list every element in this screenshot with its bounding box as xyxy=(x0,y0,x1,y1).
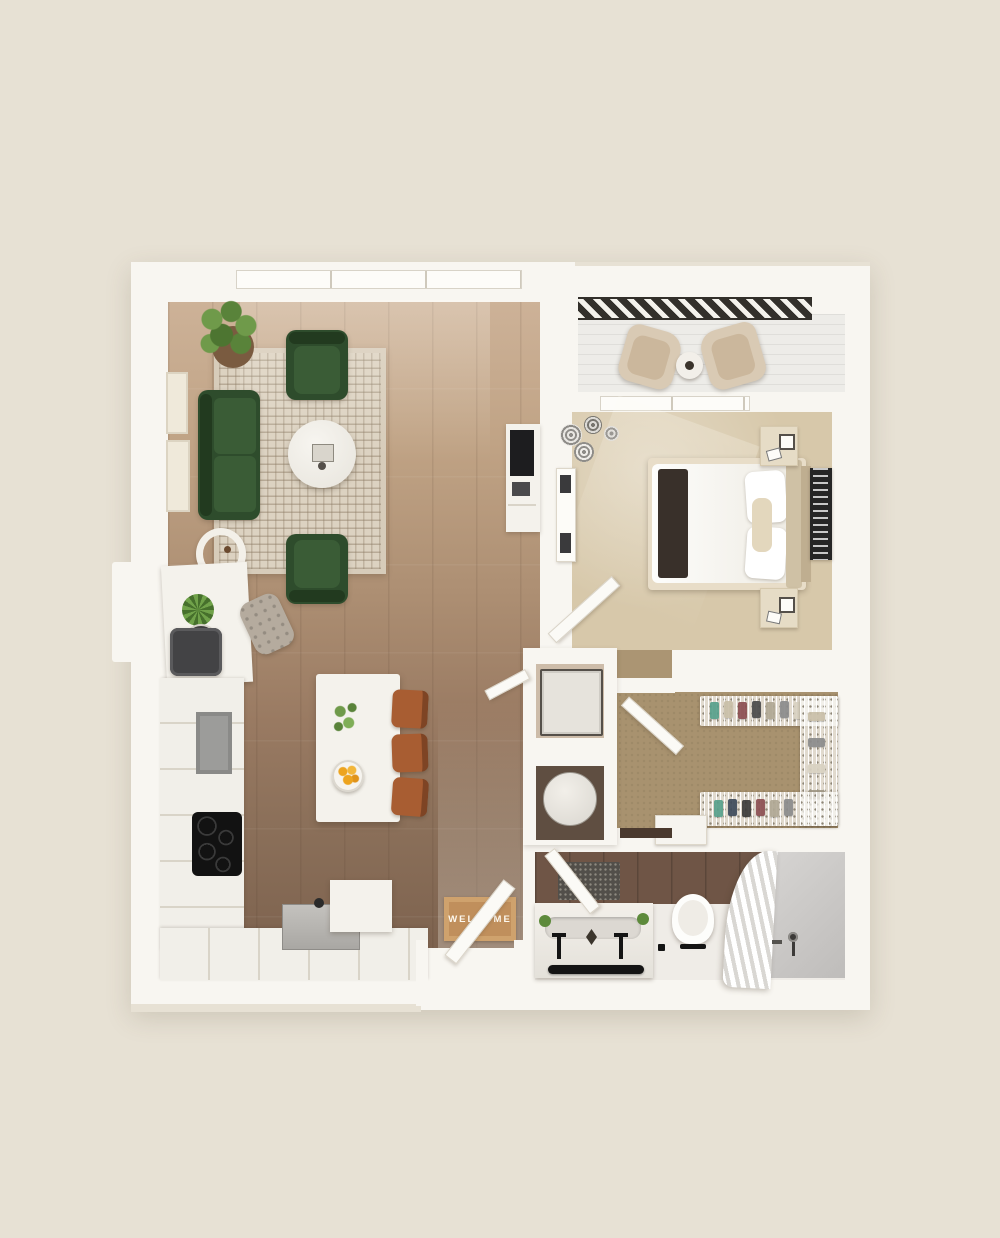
wall-hall-stub xyxy=(617,678,675,693)
side-table-decor xyxy=(224,546,231,553)
nightstand-lamp xyxy=(779,597,795,613)
refrigerator xyxy=(170,628,222,676)
sofa-back-cushion xyxy=(200,394,212,516)
armchair-bottom xyxy=(286,534,348,604)
toilet xyxy=(672,894,714,952)
decor-vase xyxy=(574,442,594,462)
hanging-clothes xyxy=(770,800,779,817)
headboard xyxy=(786,460,802,588)
wall-balcony-top xyxy=(560,266,870,297)
nightstand-book xyxy=(766,611,782,625)
armchair-cushion xyxy=(294,346,340,394)
coffee-table xyxy=(288,420,356,488)
living-windows xyxy=(236,270,522,289)
bar-stool xyxy=(391,689,429,729)
balcony-side-table xyxy=(676,352,703,379)
vanity-plant-left xyxy=(539,915,551,927)
armchair-top xyxy=(286,330,348,400)
wall-oven xyxy=(196,712,232,774)
lounge-cushion xyxy=(709,332,757,383)
shower-fixture-bar xyxy=(792,942,795,956)
accent-pillow xyxy=(752,498,772,552)
nightstand-book xyxy=(766,447,782,461)
kitchen-island xyxy=(316,674,400,822)
hanging-clothes xyxy=(756,799,765,816)
hanging-clothes xyxy=(710,702,719,719)
wall-closet-top xyxy=(672,650,845,692)
shower-fixture xyxy=(788,932,798,942)
shower-valve xyxy=(772,940,782,944)
kitchen-sink-faucet xyxy=(314,898,324,908)
armchair-cushion xyxy=(294,540,340,588)
water-heater xyxy=(543,772,597,826)
bedroom-dresser xyxy=(556,468,576,562)
toilet-hinge xyxy=(680,944,706,949)
dresser-drawer xyxy=(560,475,571,493)
hanging-clothes xyxy=(766,702,775,719)
closet-doorway-shadow xyxy=(620,828,672,838)
hanging-clothes xyxy=(742,800,751,817)
armchair-back xyxy=(289,590,345,602)
armchair-back xyxy=(289,332,345,344)
table-decor-books xyxy=(312,444,334,462)
toilet-seat xyxy=(678,900,708,936)
lounge-cushion xyxy=(625,333,673,382)
cooktop xyxy=(192,812,242,876)
wall-right xyxy=(845,266,870,1010)
hanging-clothes xyxy=(714,800,723,817)
faucet-right-spout xyxy=(614,933,628,937)
sofa-seat-cushion xyxy=(214,398,256,454)
sofa xyxy=(198,390,260,520)
wall-art xyxy=(810,468,832,560)
sofa-seat-cushion xyxy=(214,456,256,512)
nightstand-lamp xyxy=(779,434,795,450)
hanging-clothes xyxy=(752,701,761,718)
washer-dryer xyxy=(540,669,603,736)
hanging-clothes xyxy=(784,799,793,816)
entry-jamb-right xyxy=(514,940,526,1006)
decor-vase xyxy=(584,416,602,434)
hanging-clothes xyxy=(738,702,747,719)
table-decor-dot xyxy=(318,462,326,470)
toilet-valve xyxy=(658,944,665,951)
floor-plan: WELCOME xyxy=(0,0,1000,1238)
starburst-plant xyxy=(182,594,214,626)
fruit-bowl xyxy=(332,760,364,792)
flower-sprig xyxy=(330,700,364,738)
hanging-clothes xyxy=(728,799,737,816)
towel-bar xyxy=(548,965,644,974)
folded-clothes xyxy=(808,712,825,721)
nightstand-top xyxy=(760,426,798,466)
console-shelf-line xyxy=(508,504,536,506)
wall-frame-upper xyxy=(166,372,188,434)
hanging-clothes xyxy=(780,701,789,718)
closet-shelf-bottom xyxy=(700,792,838,826)
hanging-clothes xyxy=(724,701,733,718)
bar-stool xyxy=(391,733,428,772)
balcony-railing xyxy=(578,296,812,320)
tv-console xyxy=(506,424,540,532)
bed-runner-blanket xyxy=(658,469,688,578)
decor-vase xyxy=(604,426,619,441)
folded-clothes xyxy=(808,764,825,773)
vanity-plant-right xyxy=(637,913,649,925)
potted-plant xyxy=(196,300,260,364)
dresser-drawer xyxy=(560,533,571,553)
nightstand-bottom xyxy=(760,588,798,628)
table-cup xyxy=(685,361,694,370)
faucet-left-spout xyxy=(552,933,566,937)
bar-stool xyxy=(391,777,430,817)
bedroom-windows xyxy=(600,396,750,411)
kitchen-peninsula xyxy=(330,880,392,932)
wall-bottom-right xyxy=(523,980,870,1008)
entry-jamb-left xyxy=(416,940,428,1006)
folded-clothes xyxy=(808,738,825,747)
wall-frame-lower xyxy=(166,440,190,512)
tv-screen xyxy=(510,430,534,476)
wall-balcony-left xyxy=(558,266,578,394)
console-frame xyxy=(512,482,530,496)
